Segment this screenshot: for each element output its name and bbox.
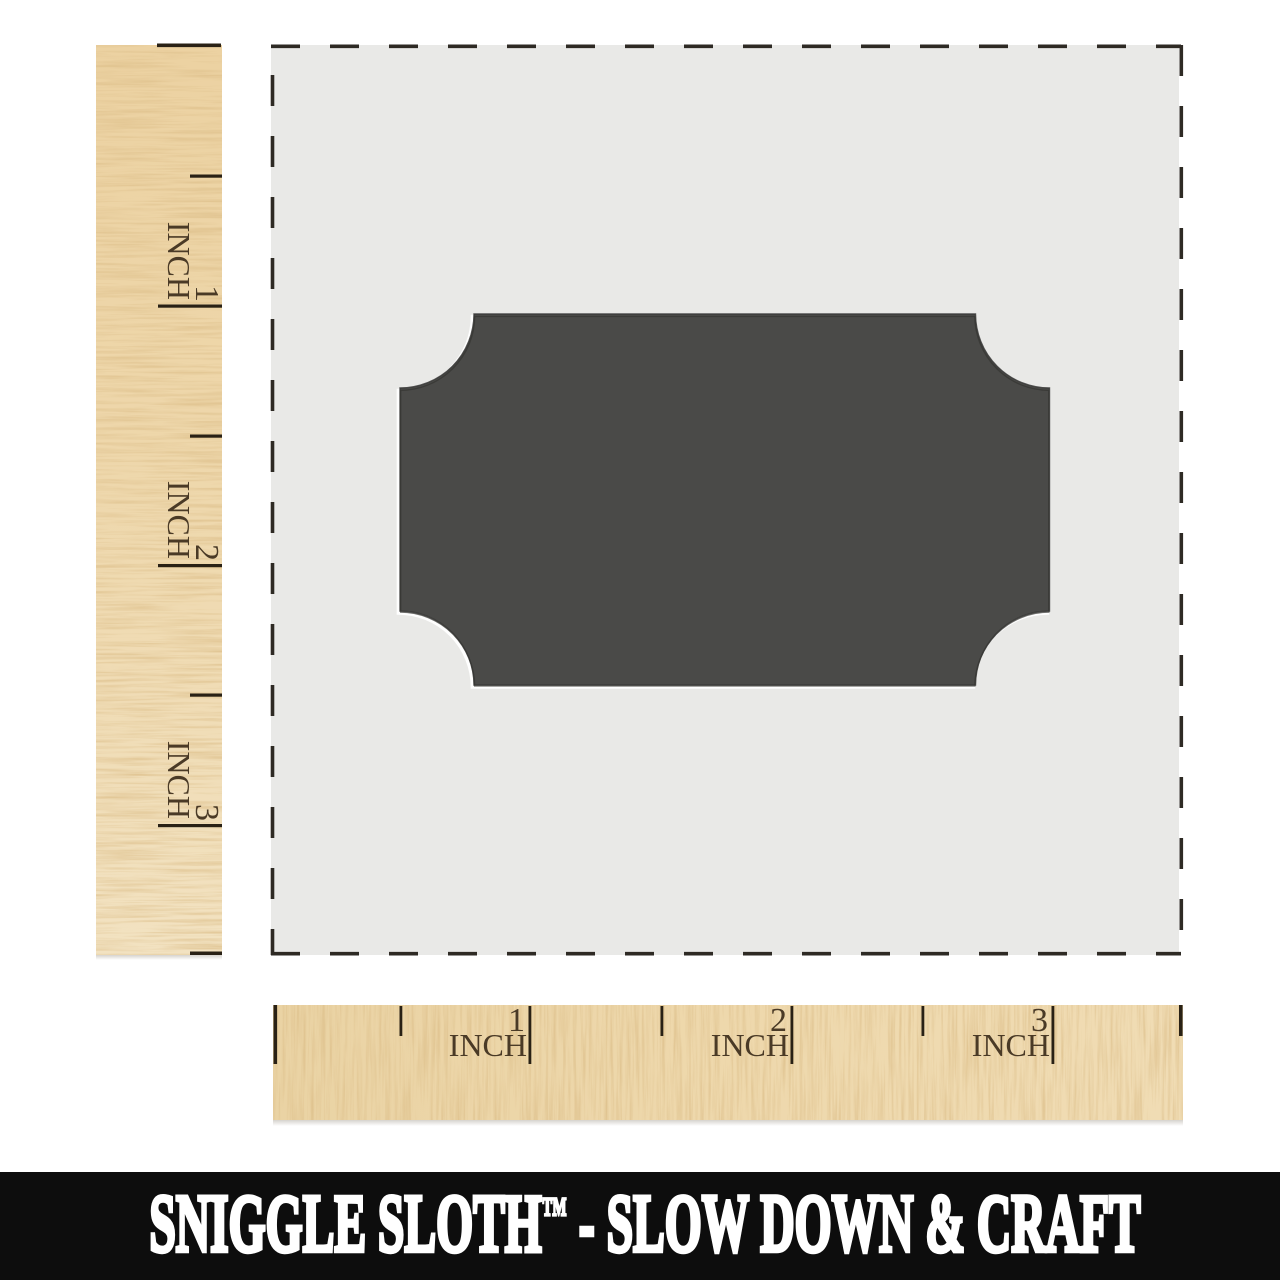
svg-text:INCH: INCH [161,741,197,819]
svg-text:INCH: INCH [972,1027,1050,1063]
svg-text:SNIGGLE SLOTH™ - SLOW DOWN & C: SNIGGLE SLOTH™ - SLOW DOWN & CRAFT [149,1177,1140,1269]
svg-text:INCH: INCH [161,481,197,559]
svg-text:INCH: INCH [711,1027,789,1063]
svg-text:INCH: INCH [449,1027,527,1063]
svg-text:INCH: INCH [161,222,197,300]
